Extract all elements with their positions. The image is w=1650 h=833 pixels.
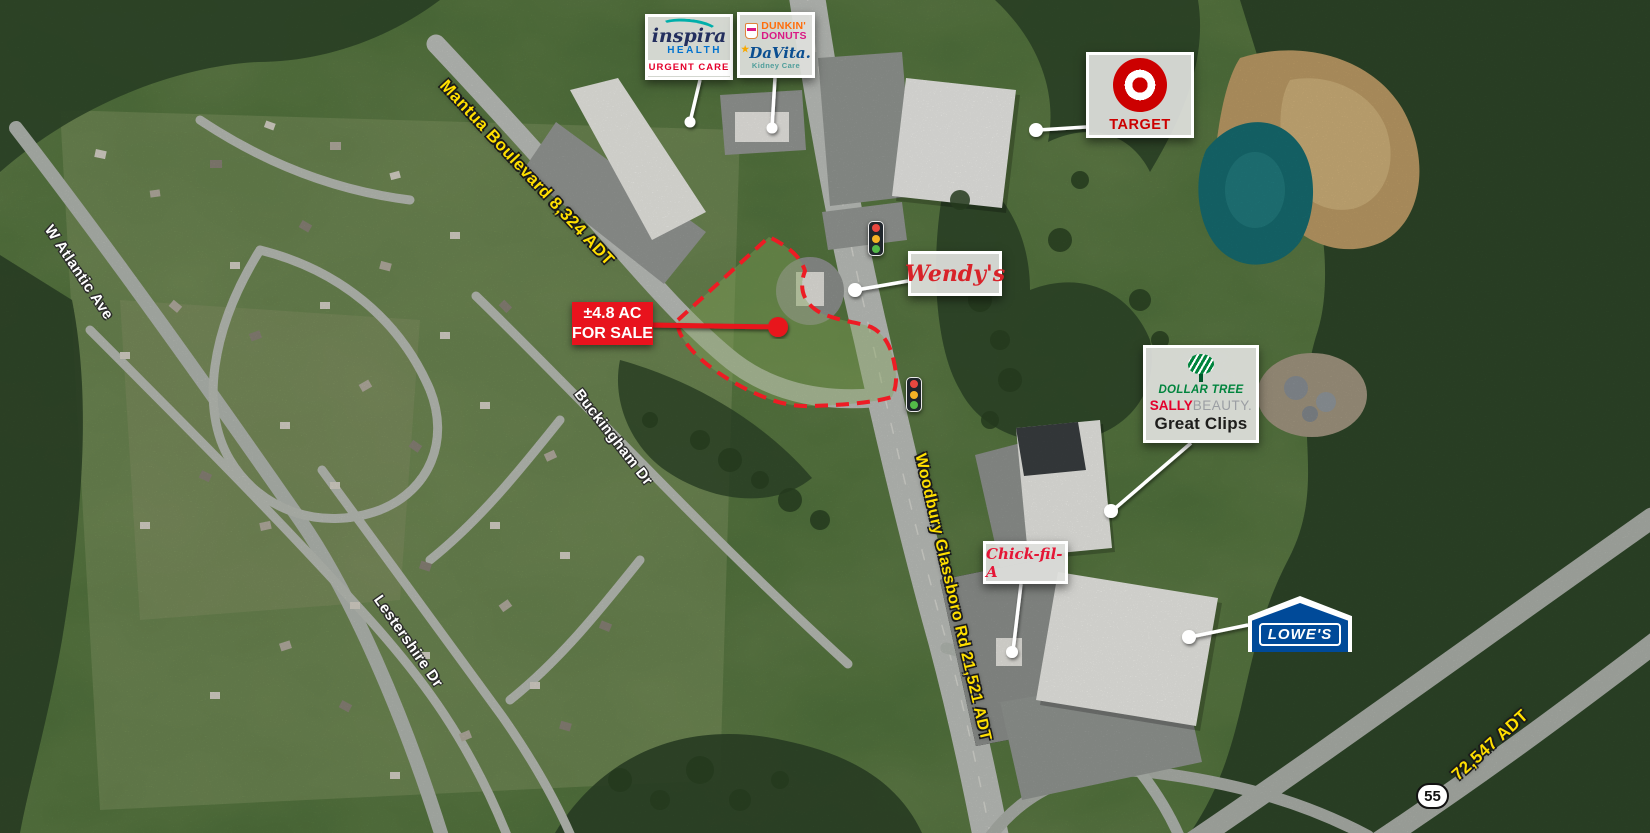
- red-light: [872, 224, 880, 232]
- dunkin-logo: DUNKIN' DONUTS: [745, 21, 807, 41]
- tree-trunk: [1199, 374, 1203, 382]
- bullseye-icon: [1113, 58, 1167, 112]
- target-brand-text: TARGET: [1109, 117, 1171, 133]
- green-light: [872, 245, 880, 253]
- red-light: [910, 380, 918, 388]
- label-dunkin-davita: DUNKIN' DONUTS ★DaVita. Kidney Care: [737, 12, 815, 78]
- photo-grain-overlay: [0, 0, 1650, 833]
- label-target: TARGET: [1086, 52, 1194, 138]
- label-chick-fil-a: Chick-fil-A: [983, 541, 1068, 584]
- striped-tree-icon: [1188, 354, 1214, 382]
- davita-brand-text: DaVita.: [749, 44, 811, 62]
- label-inspira-urgent-care: inspira HEALTH URGENT CARE: [645, 14, 733, 80]
- house-gable-icon: LOWE'S: [1252, 603, 1348, 652]
- donuts-text: DONUTS: [761, 30, 807, 42]
- coffee-cup-icon: [745, 23, 758, 39]
- route-number: 55: [1424, 788, 1441, 805]
- davita-star-icon: ★: [741, 45, 749, 55]
- yellow-light: [910, 391, 918, 399]
- label-wendys: Wendy's: [908, 251, 1002, 296]
- satellite-map-canvas: [0, 0, 1650, 833]
- dollar-tree-brand-text: DOLLAR TREE: [1158, 384, 1243, 396]
- urgent-care-text: URGENT CARE: [648, 60, 730, 76]
- inspira-logo: inspira: [652, 27, 727, 45]
- sally-text: SALLY: [1150, 398, 1193, 413]
- wendys-brand-text: Wendy's: [905, 261, 1005, 287]
- sale-status: FOR SALE: [572, 324, 653, 344]
- chick-fil-a-brand-text: Chick-fil-A: [986, 545, 1065, 581]
- great-clips-brand-text: Great Clips: [1155, 414, 1248, 434]
- tree-canopy: [1188, 354, 1214, 374]
- sally-beauty-logo: SALLYBEAUTY.: [1150, 398, 1253, 413]
- lowes-brand-text: LOWE'S: [1259, 623, 1342, 646]
- traffic-light-icon: [906, 377, 922, 412]
- aerial-site-map: Mantua Boulevard 8,324 ADT Woodbury Glas…: [0, 0, 1650, 833]
- beauty-text: BEAUTY.: [1193, 398, 1253, 413]
- label-dollar-tree-strip: DOLLAR TREE SALLYBEAUTY. Great Clips: [1143, 345, 1259, 443]
- yellow-light: [872, 235, 880, 243]
- sale-acreage: ±4.8 AC: [584, 304, 642, 324]
- green-light: [910, 401, 918, 409]
- davita-logo: ★DaVita.: [741, 43, 811, 61]
- kidney-care-text: Kidney Care: [752, 61, 800, 70]
- for-sale-callout: ±4.8 AC FOR SALE: [572, 302, 653, 345]
- route-shield-icon: 55: [1416, 783, 1449, 809]
- traffic-light-icon: [868, 221, 884, 256]
